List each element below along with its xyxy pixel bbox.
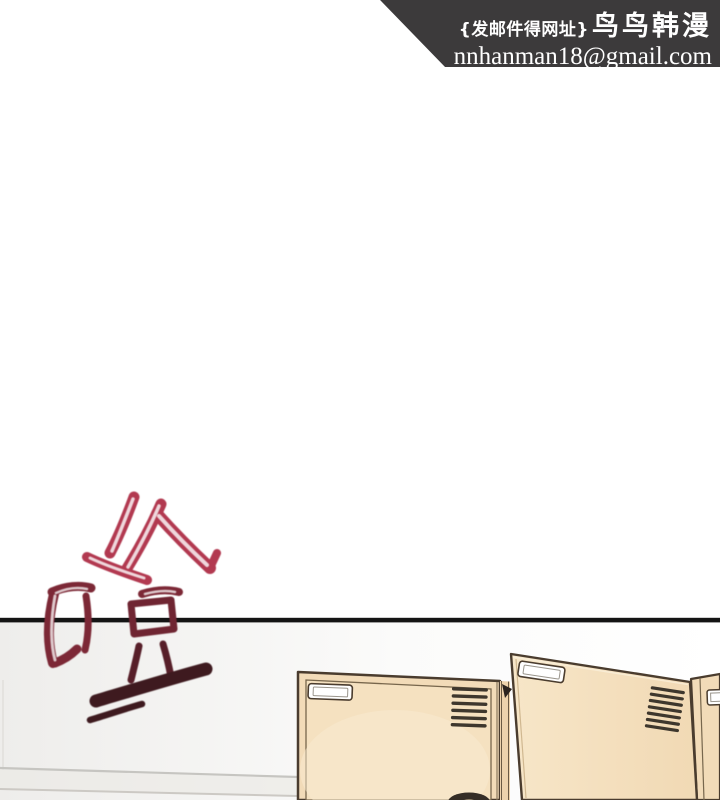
sfx-deng-glyph <box>30 480 230 750</box>
comic-page: {发邮件得网址} 鸟鸟韩漫 nnhanman18@gmail.com <box>0 0 720 800</box>
locker-label-plate <box>308 684 353 701</box>
banner-note-text: {发邮件得网址} <box>459 15 589 40</box>
banner-brand-text: 鸟鸟韩漫 <box>592 4 712 43</box>
sfx-top-strokes <box>87 497 217 580</box>
sfx-box-stroke <box>131 600 174 634</box>
banner-line1: {发邮件得网址} 鸟鸟韩漫 <box>454 4 712 43</box>
locker-left <box>298 672 500 800</box>
publisher-watermark-banner: {发邮件得网址} 鸟鸟韩漫 nnhanman18@gmail.com <box>378 0 720 67</box>
banner-email-text: nnhanman18@gmail.com <box>454 44 712 70</box>
locker-label-plate <box>707 689 720 705</box>
banner-text-block: {发邮件得网址} 鸟鸟韩漫 nnhanman18@gmail.com <box>454 0 712 70</box>
sfx-bottom-sweep <box>90 669 206 720</box>
